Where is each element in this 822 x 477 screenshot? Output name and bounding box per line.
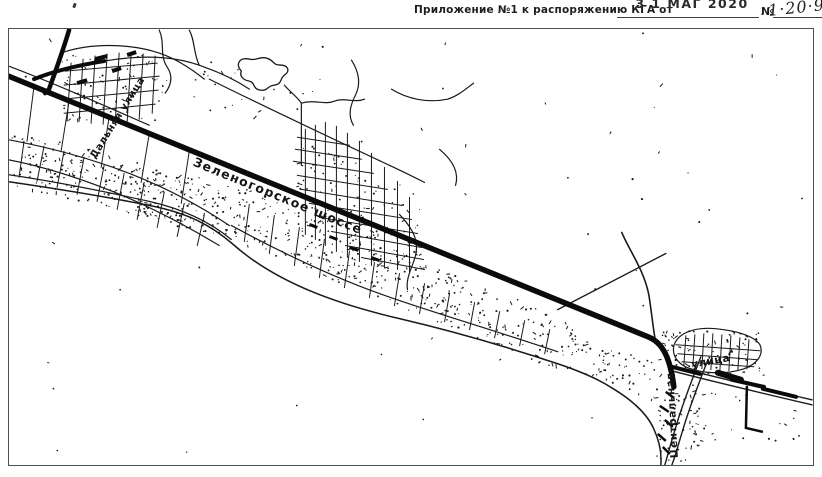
stipple-dash <box>139 209 141 212</box>
stipple-dot <box>522 344 523 345</box>
stipple-dot <box>377 281 379 283</box>
stipple-dot <box>311 219 312 220</box>
stipple-dot <box>693 433 695 435</box>
stipple-dash <box>262 243 263 246</box>
stipple-dot <box>166 80 167 81</box>
coastal-road-left-3 <box>9 174 231 239</box>
stipple-dot <box>533 321 535 323</box>
stipple-dot <box>241 99 242 100</box>
stipple-dot <box>478 302 479 303</box>
stipple-dot <box>421 295 422 296</box>
stipple-dash <box>63 105 65 106</box>
stipple-dot <box>446 282 448 284</box>
stipple-dot <box>180 185 181 186</box>
stipple-dot <box>296 108 298 110</box>
stipple-dot <box>554 326 555 327</box>
stipple-dot <box>539 335 541 337</box>
stipple-dash <box>504 324 505 328</box>
stipple-dot <box>204 230 206 232</box>
stipple-dot <box>122 87 124 89</box>
stipple-dot <box>264 199 265 200</box>
stipple-dash <box>108 155 111 159</box>
stipple-dot <box>612 375 614 377</box>
stipple-dash <box>203 186 206 188</box>
stipple-dot <box>574 335 576 337</box>
stipple-dot <box>572 329 574 331</box>
stipple-dot <box>258 230 259 231</box>
stipple-dot <box>696 410 698 412</box>
stipple-dash <box>666 331 668 334</box>
stipple-dot <box>61 169 63 171</box>
stipple-dot <box>695 433 697 435</box>
stipple-dot <box>247 230 248 231</box>
stipple-dot <box>400 295 402 297</box>
stipple-dash <box>92 164 95 168</box>
stipple-dash <box>673 333 675 336</box>
stipple-dash <box>296 186 299 188</box>
stipple-dot <box>395 273 397 275</box>
stipple-dot <box>303 180 305 182</box>
stipple-dot <box>711 393 713 395</box>
stipple-dot <box>659 439 661 441</box>
stipple-dash <box>598 368 600 370</box>
stipple-dot <box>176 177 178 179</box>
stipple-dot <box>639 373 640 374</box>
stipple-dash <box>258 110 262 113</box>
stipple-dot <box>177 219 179 221</box>
stipple-dot <box>286 223 287 224</box>
stipple-dot <box>179 182 180 183</box>
stipple-dot <box>708 209 710 211</box>
stipple-dash <box>47 362 49 363</box>
stipple-dot <box>109 179 111 181</box>
stipple-dot <box>365 264 366 265</box>
stipple-dot <box>31 137 33 139</box>
stipple-dot <box>593 363 594 364</box>
stipple-dot <box>632 383 634 385</box>
stipple-dash <box>659 374 662 378</box>
stipple-dot <box>365 269 366 270</box>
stipple-dot <box>187 205 189 207</box>
stipple-dash <box>456 308 458 311</box>
stipple-dot <box>673 338 674 339</box>
stipple-dot <box>105 169 107 171</box>
stipple-dash <box>155 178 156 181</box>
stipple-dot <box>309 243 310 244</box>
stipple-dot <box>125 86 127 88</box>
stipple-dot <box>642 32 644 34</box>
stipple-dot <box>572 340 573 341</box>
stipple-dot <box>238 189 240 191</box>
stipple-dot <box>353 205 355 207</box>
stipple-dot <box>67 80 68 81</box>
stipple-dot <box>742 437 744 439</box>
stipple-dot <box>413 287 414 288</box>
stipple-dot <box>603 356 604 357</box>
stipple-dash <box>70 160 73 164</box>
stipple-dot <box>776 75 777 76</box>
stipple-dot <box>235 229 237 231</box>
stipple-dot <box>196 194 197 195</box>
stipple-dot <box>218 193 220 195</box>
stipple-dot <box>489 326 491 328</box>
stipple-dot <box>136 183 138 185</box>
stipple-dot <box>413 193 415 195</box>
stipple-dot <box>744 338 746 340</box>
stipple-dot <box>447 310 448 311</box>
stipple-dot <box>303 148 304 149</box>
stipple-dot <box>39 140 40 141</box>
stipple-dot <box>312 91 313 92</box>
stipple-dot <box>402 258 403 259</box>
stipple-dot <box>374 237 376 239</box>
stipple-dot <box>561 346 563 348</box>
stipple-dot <box>179 180 180 181</box>
stipple-dot <box>644 374 645 375</box>
stipple-dot <box>282 212 284 214</box>
stipple-dot <box>381 287 382 288</box>
stipple-dash <box>499 359 502 361</box>
stipple-dot <box>311 242 313 244</box>
stipple-dot <box>692 426 694 428</box>
stipple-dot <box>430 307 432 309</box>
stipple-dot <box>44 143 46 145</box>
stipple-dot <box>604 369 606 371</box>
stipple-dash <box>555 364 557 368</box>
stipple-dot <box>390 260 391 261</box>
upper-path <box>209 79 424 182</box>
stipple-dot <box>311 146 313 148</box>
stipple-dot <box>291 253 292 254</box>
stipple-dot <box>332 244 333 245</box>
stipple-dash <box>354 262 355 266</box>
stipple-dot <box>530 308 532 310</box>
stipple-dot <box>649 379 650 380</box>
stipple-dot <box>65 194 66 195</box>
stipple-dot <box>265 203 266 204</box>
stipple-dot <box>179 215 181 217</box>
stipple-dot <box>285 234 286 235</box>
stipple-dot <box>232 105 233 106</box>
stipple-dot <box>729 334 731 336</box>
stipple-dot <box>801 198 803 200</box>
stipple-dot <box>310 256 311 257</box>
stipple-dot <box>165 175 167 177</box>
stipple-dot <box>449 277 451 279</box>
stipple-dot <box>360 215 361 216</box>
stipple-dash <box>654 397 658 399</box>
stipple-dash <box>300 44 302 47</box>
north-branch-road <box>45 30 69 93</box>
stipple-dot <box>210 61 212 63</box>
stipple-dot <box>225 196 227 198</box>
stipple-dot <box>63 107 65 109</box>
stipple-dot <box>218 196 220 198</box>
stipple-dot <box>128 212 129 213</box>
stipple-dash <box>689 421 690 424</box>
stipple-dot <box>104 193 106 195</box>
stipple-dash <box>247 245 249 248</box>
stipple-dot <box>739 400 741 402</box>
stipple-dash <box>510 301 513 305</box>
stipple-dash <box>584 344 588 346</box>
stipple-dot <box>502 326 503 327</box>
stipple-dot <box>364 191 365 192</box>
stipple-dot <box>275 237 277 239</box>
stipple-dot <box>192 183 193 184</box>
stipple-dot <box>624 366 625 367</box>
stipple-dot <box>227 186 228 187</box>
stipple-dot <box>62 61 63 62</box>
stipple-dot <box>337 279 338 280</box>
stipple-dot <box>376 271 378 273</box>
stipple-dot <box>315 247 316 248</box>
stipple-dot <box>470 304 471 305</box>
stipple-dash <box>464 193 467 196</box>
stipple-dot <box>84 172 85 173</box>
stipple-dash <box>435 282 436 284</box>
stipple-dot <box>483 314 485 316</box>
stipple-dot <box>387 270 389 272</box>
stipple-dot <box>233 217 235 219</box>
stipple-dot <box>381 354 383 356</box>
stipple-dot <box>114 174 116 176</box>
stipple-dash <box>421 128 423 131</box>
stipple-dot <box>454 275 456 277</box>
stipple-dash <box>80 160 82 161</box>
stipple-dash <box>52 242 55 245</box>
stipple-dot <box>56 175 58 177</box>
stipple-dot <box>675 355 677 357</box>
stipple-dot <box>613 355 615 357</box>
stipple-dot <box>158 190 159 191</box>
stipple-dot <box>662 335 664 337</box>
stipple-dot <box>50 172 51 173</box>
stipple-dot <box>305 248 307 250</box>
stipple-dot <box>351 258 353 260</box>
stipple-dot <box>454 292 456 294</box>
stipple-dot <box>204 200 206 202</box>
stipple-dot <box>222 197 224 199</box>
stipple-dot <box>318 154 320 156</box>
stipple-dot <box>302 228 303 229</box>
stipple-dot <box>306 266 307 267</box>
stipple-dot <box>735 396 736 397</box>
stipple-dot <box>184 194 186 196</box>
stipple-dot <box>155 169 157 171</box>
stipple-dash <box>253 116 257 120</box>
coastal-road-mid <box>231 225 557 351</box>
stipple-dot <box>65 170 67 172</box>
stipple-dot <box>687 172 688 173</box>
stipple-dot <box>506 310 508 312</box>
stipple-dash <box>358 270 362 273</box>
stipple-dot <box>239 192 241 194</box>
stipple-dot <box>162 92 163 93</box>
stipple-dot <box>628 374 630 376</box>
stipple-dash <box>21 138 23 140</box>
stipple-dot <box>727 341 729 343</box>
stipple-dot <box>461 288 462 289</box>
stipple-dot <box>450 321 452 323</box>
stipple-dot <box>95 177 97 179</box>
stipple-dot <box>376 276 377 277</box>
stipple-dot <box>651 362 653 364</box>
stipple-dash <box>520 306 524 310</box>
stipple-dot <box>452 305 453 306</box>
stipple-dot <box>412 276 414 278</box>
stipple-dot <box>759 367 761 369</box>
stipple-dot <box>539 349 541 351</box>
stipple-dot <box>355 239 356 240</box>
stipple-dot <box>82 176 83 177</box>
stipple-dash <box>410 296 411 300</box>
stipple-dot <box>297 253 299 255</box>
stipple-dot <box>575 339 576 340</box>
stipple-dot <box>237 69 238 70</box>
stipple-dot <box>148 186 149 187</box>
stipple-dash <box>354 278 357 279</box>
stipple-dot <box>234 231 236 233</box>
stipple-dash <box>377 234 378 237</box>
stipple-dot <box>146 215 148 217</box>
stipple-dot <box>663 331 665 333</box>
stipple-dot <box>36 164 38 166</box>
stipple-dot <box>664 334 665 335</box>
stipple-dot <box>581 349 583 351</box>
stipple-dot <box>110 111 112 113</box>
stipple-dot <box>126 88 128 90</box>
stream-top-2 <box>189 30 199 65</box>
stipple-dot <box>373 234 375 236</box>
stipple-dot <box>187 182 189 184</box>
stipple-dot <box>275 213 276 214</box>
stipple-dot <box>638 361 640 363</box>
stipple-dot <box>203 230 205 232</box>
stipple-dot <box>311 235 313 237</box>
stipple-dot <box>793 438 795 440</box>
stipple-dot <box>601 350 603 352</box>
stipple-dot <box>198 177 199 178</box>
stipple-dot <box>697 416 698 417</box>
stipple-dash <box>545 102 547 104</box>
stipple-dot <box>46 192 48 194</box>
stipple-dot <box>497 334 498 335</box>
stipple-dash <box>287 239 290 241</box>
stipple-dot <box>415 269 417 271</box>
stipple-dash <box>189 196 193 199</box>
stipple-dash <box>288 235 290 237</box>
stipple-dot <box>275 255 277 257</box>
stipple-dash <box>319 244 323 246</box>
central-street-label: Центральная <box>664 372 680 458</box>
stipple-dot <box>626 366 627 367</box>
stipple-dot <box>342 161 344 163</box>
stipple-dot <box>266 236 268 238</box>
stipple-dash <box>317 221 319 224</box>
stipple-dot <box>486 336 487 337</box>
stipple-dot <box>47 170 48 171</box>
stipple-dash <box>353 259 355 261</box>
stipple-dot <box>442 88 444 90</box>
stipple-dot <box>153 198 155 200</box>
stipple-dot <box>458 327 459 328</box>
stipple-dash <box>658 151 660 154</box>
stipple-dash <box>547 350 548 352</box>
stipple-dot <box>448 290 449 291</box>
stipple-dot <box>528 319 530 321</box>
stipple-dot <box>127 68 129 70</box>
stipple-dot <box>659 420 660 421</box>
stipple-dot <box>660 415 662 417</box>
stipple-dash <box>143 190 145 192</box>
stipple-dash <box>651 399 653 401</box>
stipple-dot <box>342 269 343 270</box>
stipple-dot <box>692 384 694 386</box>
stipple-dot <box>574 344 576 346</box>
stipple-dot <box>25 76 27 78</box>
stipple-dot <box>28 154 30 156</box>
coastal-road-left-2 <box>9 159 219 245</box>
stipple-dash <box>444 42 446 45</box>
stipple-dot <box>188 203 189 204</box>
stipple-dot <box>369 251 370 252</box>
stipple-dot <box>214 83 216 85</box>
stipple-dot <box>137 206 139 208</box>
stipple-dot <box>352 240 354 242</box>
stipple-dot <box>653 397 654 398</box>
stipple-dash <box>81 153 84 157</box>
stipple-dot <box>622 374 624 376</box>
stipple-dot <box>340 256 342 258</box>
stipple-dot <box>319 79 320 80</box>
stipple-dot <box>170 221 172 223</box>
stipple-dot <box>288 209 289 210</box>
stipple-dot <box>155 173 157 175</box>
stipple-dot <box>204 71 206 73</box>
stipple-dot <box>758 332 760 334</box>
stipple-dot <box>364 180 366 182</box>
stipple-dot <box>152 171 154 173</box>
stipple-dot <box>438 278 440 280</box>
stipple-dash <box>139 168 141 170</box>
stipple-dash <box>549 320 552 324</box>
stipple-dash <box>243 217 245 220</box>
stipple-dot <box>610 376 611 377</box>
stipple-dot <box>768 438 770 440</box>
stipple-dot <box>619 364 621 366</box>
stipple-dot <box>423 419 425 421</box>
stipple-dot <box>310 263 311 264</box>
stipple-dash <box>72 114 74 117</box>
map-frame: Зеленогорское шоссе Дальняя улица Центра… <box>8 28 814 466</box>
stipple-dash <box>257 211 261 212</box>
stipple-dot <box>793 418 794 419</box>
stipple-dot <box>247 241 248 242</box>
stipple-dash <box>155 215 158 217</box>
stipple-dot <box>294 213 295 214</box>
stipple-dot <box>66 59 68 61</box>
stipple-dot <box>545 314 547 316</box>
stipple-dot <box>693 441 695 443</box>
stipple-dot <box>707 345 708 346</box>
stipple-dash <box>68 118 71 121</box>
stipple-dot <box>307 261 309 263</box>
stipple-dot <box>381 275 383 277</box>
stipple-dot <box>154 119 156 121</box>
stipple-dot <box>562 350 563 351</box>
stipple-dot <box>603 362 604 363</box>
